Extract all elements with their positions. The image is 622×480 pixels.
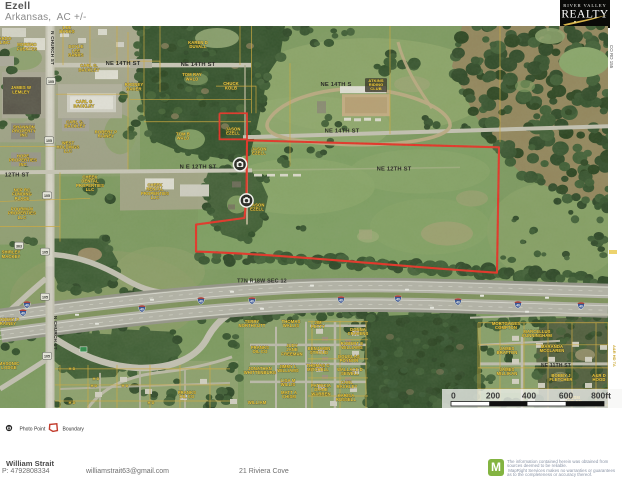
svg-text:200: 200 xyxy=(486,391,500,401)
svg-text:400: 400 xyxy=(522,391,536,401)
svg-text:600: 600 xyxy=(559,391,573,401)
svg-text:0: 0 xyxy=(451,391,456,401)
svg-text:Photo Point: Photo Point xyxy=(20,426,46,432)
svg-text:REALTY: REALTY xyxy=(561,9,608,21)
svg-text:RIVER VALLEY: RIVER VALLEY xyxy=(563,3,606,8)
svg-text:800ft: 800ft xyxy=(591,391,611,401)
svg-text:Boundary: Boundary xyxy=(63,426,85,432)
